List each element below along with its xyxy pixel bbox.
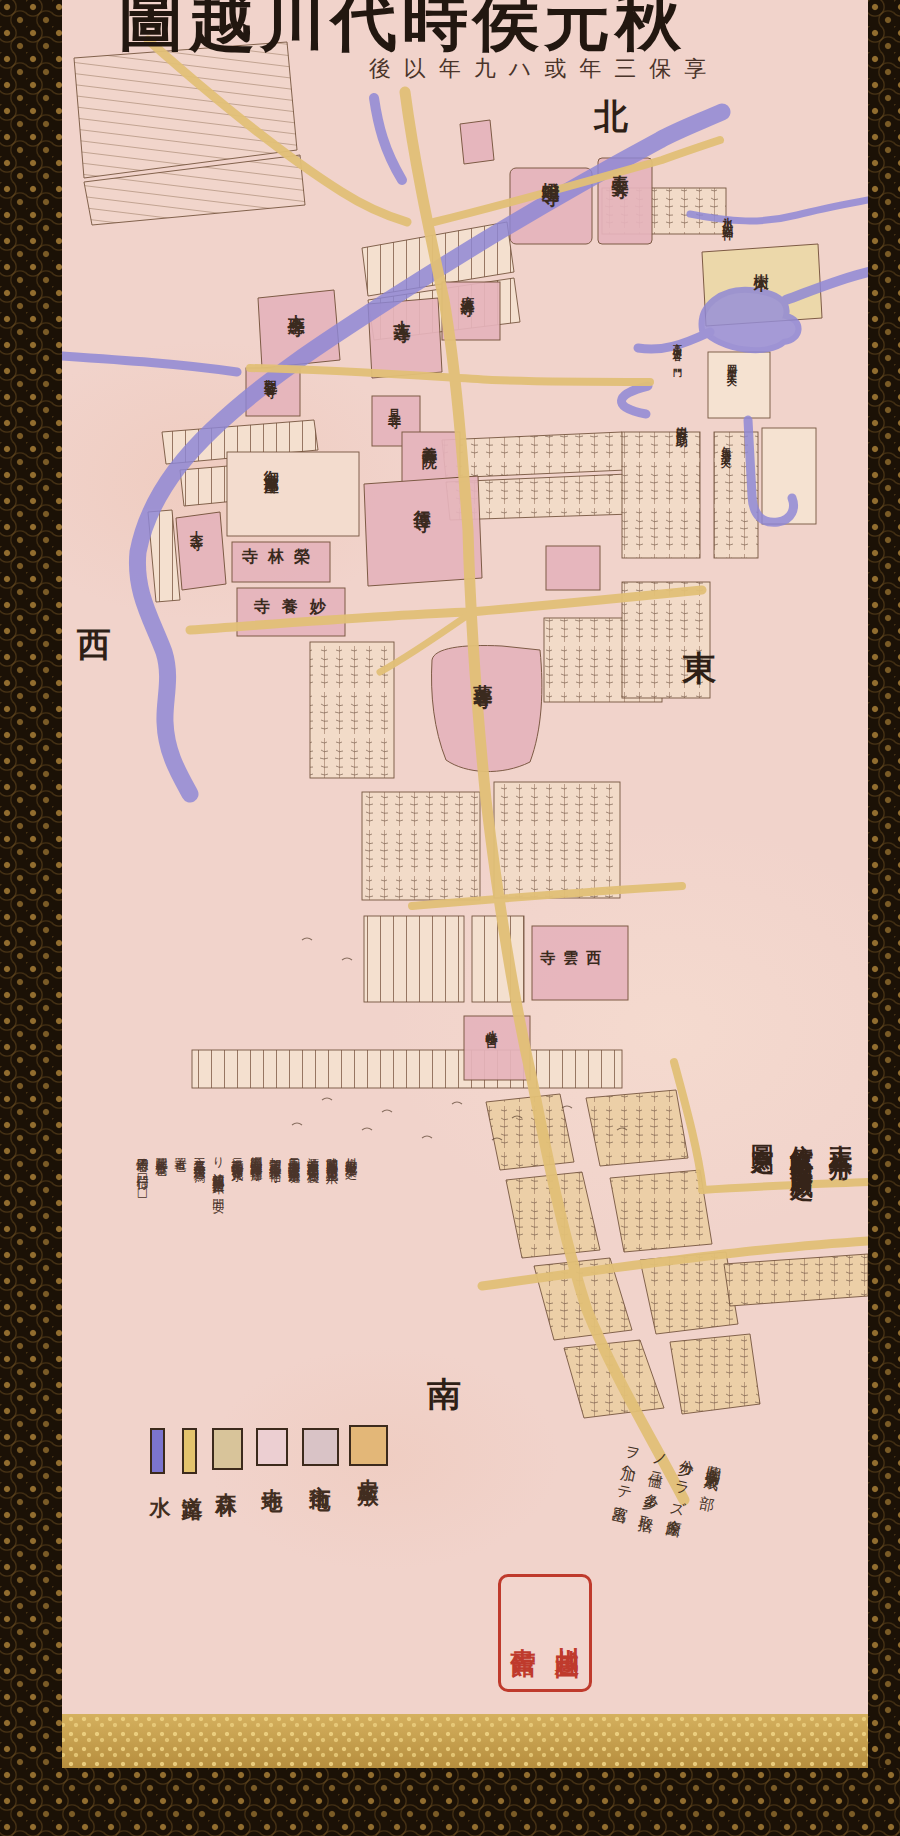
gold-brocade-band	[54, 1714, 900, 1772]
direction-east: 東	[682, 646, 716, 692]
legend-label-road: 道路	[178, 1480, 206, 1486]
colophon-text: 川越御城太田道灌築之 武藏國入間郡川越代々城主天正十八 酒井河内守重忠同備後守忠…	[118, 1148, 360, 1363]
colophon-column: 長十四酒井讃岐守忠勝寛永十二堀田	[284, 1148, 303, 1363]
brocade-border-left	[0, 0, 62, 1836]
label-yagai: 矢貝清太夫	[720, 438, 732, 453]
legend-swatch-forest	[212, 1428, 243, 1470]
direction-south: 南	[427, 1372, 461, 1418]
label-saiun-ji: 西雲寺	[540, 950, 609, 967]
label-hikawa-shrine: 氷川大明神	[720, 208, 733, 278]
seal-text-left: 書館	[507, 1628, 540, 1638]
label-iwata: 岩田彦助	[674, 416, 688, 428]
legend-label-samurai: 士屋敷	[354, 1462, 382, 1471]
label-tomyo-ji: 燈明寺	[540, 168, 561, 177]
colophon-column: 加賀守正盛同十六松平伊豆守信	[265, 1148, 284, 1363]
brocade-border-bottom	[0, 1768, 900, 1836]
label-kosai-ji: 廣濟寺	[460, 284, 476, 293]
label-taian-ji: 泰安寺	[610, 162, 630, 171]
direction-north: 北	[594, 94, 628, 140]
colophon-column: 綱同甲斐守輝綱同伊豆守信輝	[246, 1148, 265, 1363]
label-takayama: 高山傳右エ門	[672, 336, 682, 364]
colophon-column: 永三年五月中旬大沼忠保借寫	[189, 1148, 208, 1363]
label-junen-ji: 十念寺	[188, 520, 203, 529]
colophon-column: 勝沼愡右エ門信行□□	[133, 1148, 152, 1363]
colophon-column: 武藏國入間郡川越代々城主天正十八	[322, 1148, 341, 1363]
legend-label-temple: 寺地	[258, 1472, 286, 1478]
colophon-column: 酒井河内守重忠同備後守忠利慶	[303, 1148, 322, 1363]
map-paper: 秋元侯時代川越圖 享保三年或ハ九年以後 北 西 東 南 燈明寺 泰安寺 本應寺 …	[62, 0, 868, 1716]
label-hachimangu: 八幡宮	[484, 1020, 498, 1029]
attribution-column: 依舘林町長山信彦氏所藏之	[782, 1126, 821, 1666]
label-kannon-ji: 觀音寺	[262, 368, 277, 377]
attribution-column: 圖寫之	[743, 1126, 782, 1666]
label-okamura: 岡村庄太夫	[726, 356, 738, 371]
label-renkei-ji: 蓮馨寺	[472, 668, 494, 677]
label-yoju-in: 養壽院	[420, 434, 437, 443]
direction-west: 西	[77, 622, 111, 668]
brocade-border-right	[868, 0, 900, 1836]
legend-swatch-samurai	[349, 1425, 388, 1466]
colophon-column: り被成領明和四年迠六拾四年ノ間安	[208, 1148, 227, 1363]
label-otaka-beya: 御鷹部屋	[262, 458, 279, 538]
map-subtitle: 享保三年或ハ九年以後	[334, 54, 754, 84]
legend-swatch-road	[182, 1428, 197, 1474]
legend-label-town: 市街地	[306, 1468, 334, 1477]
colophon-column: 元禄七松平美濃守吉保寶永元	[227, 1148, 246, 1363]
legend-swatch-temple	[256, 1428, 288, 1466]
hanging-scroll: 秋元侯時代川越圖 享保三年或ハ九年以後 北 西 東 南 燈明寺 泰安寺 本應寺 …	[0, 0, 900, 1836]
colophon-column: 此圖屋敷新古也	[152, 1148, 171, 1363]
legend-label-water: 水	[146, 1480, 174, 1483]
legend-swatch-town	[302, 1428, 339, 1466]
legend-swatch-water	[150, 1428, 165, 1474]
legend-label-forest: 森林	[212, 1476, 240, 1482]
colophon-column: 置者也	[170, 1148, 189, 1363]
label-dairen-ji: 大蓮寺	[392, 306, 412, 315]
label-honno-ji: 本應寺	[286, 300, 306, 309]
attribution-column: 大正六年十月	[821, 1126, 860, 1666]
label-jumoku: 樹木	[752, 262, 769, 268]
label-eirin-ji: 榮林寺	[242, 548, 320, 566]
seal-text-right: 川越圖	[551, 1626, 584, 1641]
attribution-text: 大正六年十月 依舘林町長山信彦氏所藏之 圖寫之	[734, 1126, 860, 1666]
label-gyoden-ji: 行傳寺	[412, 496, 432, 505]
colophon-column: 川越御城太田道灌築之	[341, 1148, 360, 1363]
label-myoyo-ji: 妙養寺	[254, 598, 338, 616]
kawagoe-library-seal: 川越圖 書館	[498, 1574, 592, 1692]
label-kenryu-ji: 見立寺	[386, 398, 401, 407]
